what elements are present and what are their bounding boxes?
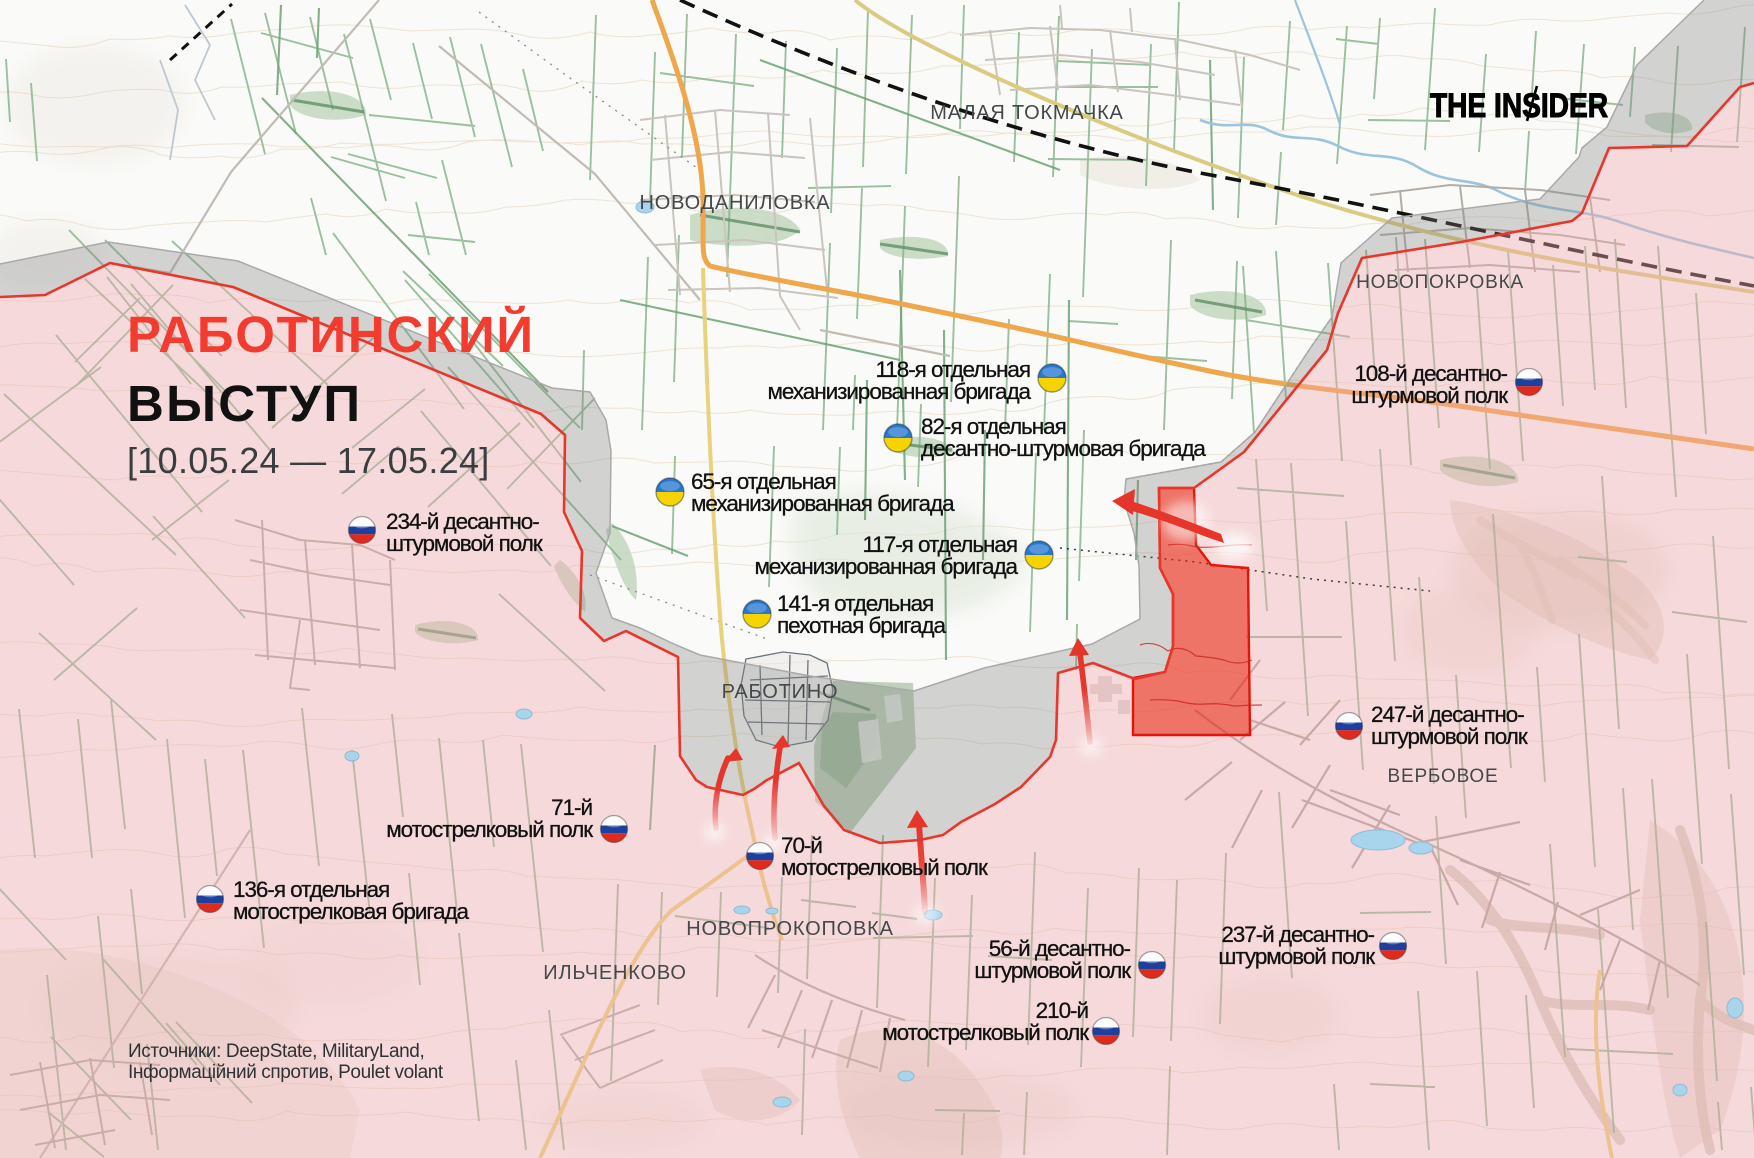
svg-text:НОВОПОКРОВКА: НОВОПОКРОВКА (1356, 272, 1524, 293)
svg-text:штурмовой полк: штурмовой полк (974, 958, 1131, 983)
svg-text:механизированная бригада: механизированная бригада (754, 554, 1018, 579)
svg-text:ВЫСТУП: ВЫСТУП (127, 375, 360, 432)
svg-text:ВЕРБОВОЕ: ВЕРБОВОЕ (1388, 766, 1499, 787)
svg-text:НОВОПРОКОПОВКА: НОВОПРОКОПОВКА (686, 918, 894, 940)
svg-text:мотострелковый полк: мотострелковый полк (386, 817, 593, 842)
svg-text:Інформаційний спротив, Poulet: Інформаційний спротив, Poulet volant (128, 1062, 444, 1083)
svg-text:МАЛАЯ ТОКМАЧКА: МАЛАЯ ТОКМАЧКА (930, 102, 1123, 124)
svg-text:мотострелковая бригада: мотострелковая бригада (233, 899, 470, 924)
svg-text:мотострелковый полк: мотострелковый полк (781, 855, 988, 880)
svg-text:РАБОТИНСКИЙ: РАБОТИНСКИЙ (127, 305, 533, 363)
svg-text:РАБОТИНО: РАБОТИНО (722, 681, 839, 703)
svg-text:десантно-штурмовая бригада: десантно-штурмовая бригада (921, 436, 1206, 461)
svg-text:штурмовой полк: штурмовой полк (1218, 944, 1375, 969)
svg-text:НОВОДАНИЛОВКА: НОВОДАНИЛОВКА (640, 192, 831, 214)
svg-text:[10.05.24 — 17.05.24]: [10.05.24 — 17.05.24] (127, 440, 490, 481)
svg-text:THE INSIDER: THE INSIDER (1430, 87, 1608, 125)
svg-text:штурмовой полк: штурмовой полк (1371, 724, 1528, 749)
svg-text:штурмовой полк: штурмовой полк (386, 531, 543, 556)
svg-text:механизированная бригада: механизированная бригада (691, 491, 955, 516)
svg-text:механизированная бригада: механизированная бригада (767, 379, 1031, 404)
svg-text:штурмовой полк: штурмовой полк (1351, 383, 1508, 408)
svg-text:ИЛЬЧЕНКОВО: ИЛЬЧЕНКОВО (543, 962, 686, 984)
svg-text:пехотная бригада: пехотная бригада (777, 613, 946, 638)
svg-text:Источники: DeepState, Military: Источники: DeepState, MilitaryLand, (128, 1041, 424, 1062)
svg-text:мотострелковый полк: мотострелковый полк (882, 1020, 1089, 1045)
